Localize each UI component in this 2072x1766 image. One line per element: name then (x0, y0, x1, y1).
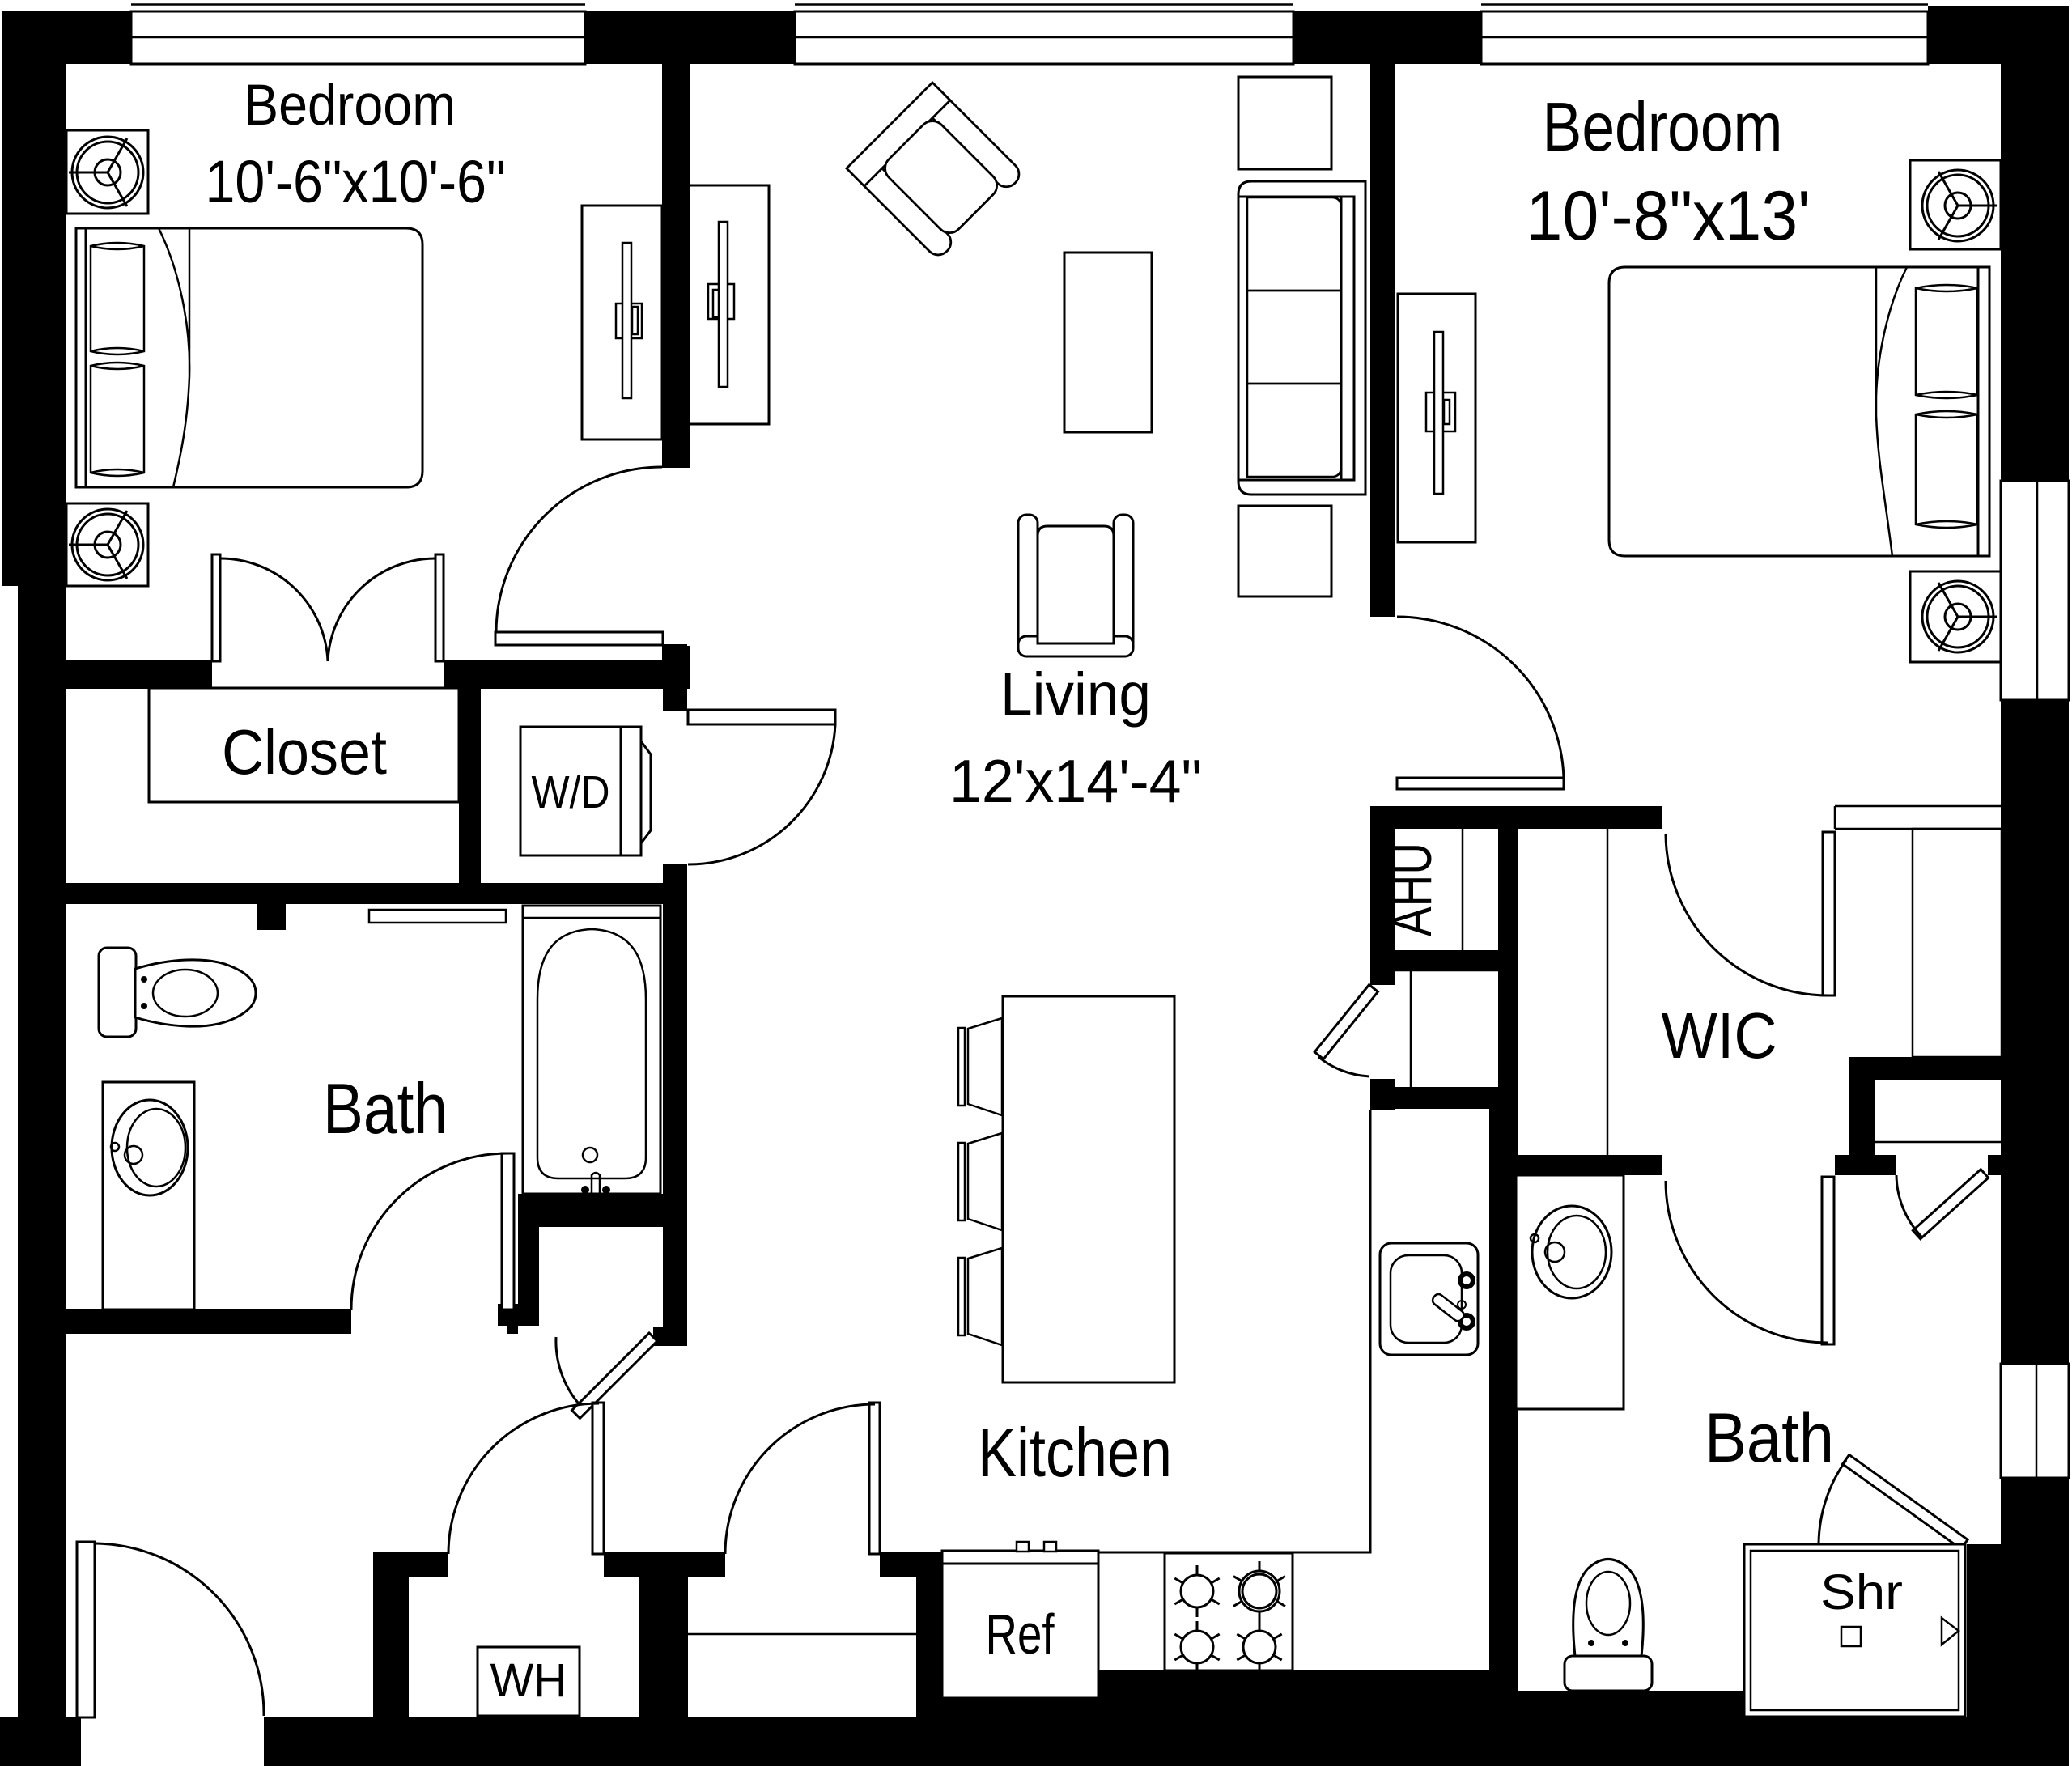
svg-text:WIC: WIC (1662, 1000, 1777, 1072)
svg-text:Kitchen: Kitchen (978, 1415, 1172, 1492)
svg-text:Bath: Bath (323, 1068, 448, 1148)
svg-text:Ref: Ref (986, 1603, 1055, 1666)
svg-text:10'-6"x10'-6": 10'-6"x10'-6" (206, 148, 506, 215)
svg-text:12'x14'-4": 12'x14'-4" (949, 747, 1202, 815)
svg-text:Bedroom: Bedroom (244, 74, 456, 138)
svg-text:Bedroom: Bedroom (1543, 89, 1783, 166)
svg-text:Closet: Closet (222, 716, 387, 787)
svg-text:10'-8"x13': 10'-8"x13' (1526, 177, 1811, 255)
svg-text:Living: Living (1000, 660, 1151, 728)
svg-text:Shr: Shr (1820, 1564, 1903, 1620)
svg-text:W/D: W/D (532, 766, 610, 818)
svg-text:WH: WH (490, 1654, 567, 1707)
svg-text:Bath: Bath (1705, 1399, 1834, 1477)
svg-text:AHU: AHU (1380, 843, 1443, 936)
